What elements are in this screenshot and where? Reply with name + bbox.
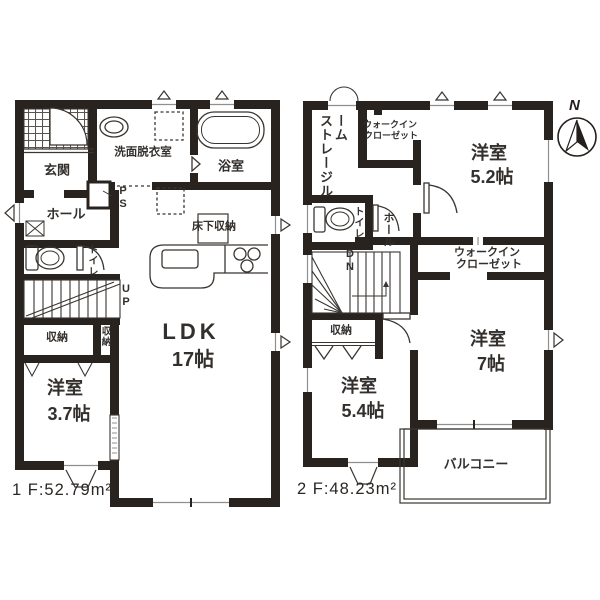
label-underfloor-storage: 床下収納: [192, 222, 236, 233]
label-closet-2f: 収納: [330, 326, 352, 337]
room-label-ldk: LDK: [162, 321, 219, 343]
stove-burner-icon: [234, 248, 246, 260]
floor-plan-drawing: [0, 0, 600, 600]
floor1-entrance-porch: [24, 108, 94, 153]
stove-burner-icon: [248, 248, 260, 260]
room-label-bathroom: 浴室: [218, 160, 244, 173]
room-label-ldk-size: 17帖: [172, 350, 214, 370]
fridge-space-icon: [157, 188, 184, 214]
compass: [558, 118, 596, 156]
room-label-room7-size: 7帖: [477, 355, 505, 373]
bathtub-icon: [197, 112, 264, 148]
room-label-wic-top-2: クローゼット: [364, 132, 418, 141]
floor-plan: 玄関 洗面脱衣室 浴室 ホール トイレ PS 床下収納 LDK 17帖 UP 収…: [0, 0, 600, 600]
kitchen-sink-icon: [162, 250, 198, 268]
closet-door-marker: [78, 363, 92, 376]
room-label-genkan: 玄関: [44, 164, 70, 177]
room-label-balcony: バルコニー: [444, 458, 509, 471]
compass-north-label: N: [569, 97, 580, 114]
toilet-tank-icon: [314, 207, 325, 232]
room-label-room54: 洋室: [341, 377, 377, 395]
label-stairs-up: UP: [120, 283, 131, 309]
room-label-wic-mid-2: クローゼット: [456, 260, 522, 271]
room-label-storage-room: ストレージルーム: [317, 114, 347, 198]
floor2-area-label: 2 F:48.23m²: [297, 480, 397, 499]
room-door-leaf: [424, 183, 429, 213]
room-label-washroom: 洗面脱衣室: [114, 147, 172, 159]
room-door-arc: [429, 185, 457, 213]
floor1-stairs: [24, 280, 120, 460]
kitchen-counter-icon: [150, 245, 268, 288]
floor1-area-label: 1 F:52.79m²: [12, 481, 112, 500]
pipe-space-box: [88, 182, 110, 208]
toilet-bowl-icon: [326, 208, 354, 230]
washer-space-icon: [155, 112, 183, 140]
label-stairs-down: DN: [344, 248, 355, 274]
label-pipe-space: PS: [117, 185, 128, 211]
room-door-arc: [383, 319, 410, 343]
room-label-hall-1f: ホール: [46, 208, 85, 221]
room-label-room54-size: 5.4帖: [341, 402, 384, 420]
bath-door-marker: [192, 157, 200, 171]
stove-burner-icon: [241, 260, 253, 272]
closet-door-marker: [25, 363, 39, 376]
room-label-room52: 洋室: [471, 144, 507, 162]
washbasin-icon: [100, 117, 128, 137]
floor2-stairs: [312, 252, 400, 313]
toilet-bowl-icon: [36, 247, 64, 269]
room-label-wic-top-1: ウォークイン: [363, 121, 417, 130]
closet-door-marker: [315, 346, 333, 359]
room-label-west-room-size: 3.7帖: [47, 405, 90, 423]
label-closet-side-1f: 収納: [100, 326, 110, 347]
toilet-door-leaf: [77, 246, 83, 270]
room-label-hall-2f: ホール: [382, 212, 393, 248]
room-label-toilet-2f: トイレ: [352, 206, 362, 239]
room-label-toilet-1f: トイレ: [86, 244, 96, 277]
room-label-wic-mid-1: ウォークイン: [454, 248, 520, 259]
toilet-door-leaf: [373, 205, 378, 231]
label-closet-1f: 収納: [46, 333, 68, 344]
room-door-leaf: [383, 313, 410, 319]
room-label-room52-size: 5.2帖: [470, 168, 513, 186]
closet-door-marker: [343, 346, 361, 359]
room-label-west-room: 洋室: [47, 379, 83, 397]
room-label-room7: 洋室: [470, 330, 506, 348]
